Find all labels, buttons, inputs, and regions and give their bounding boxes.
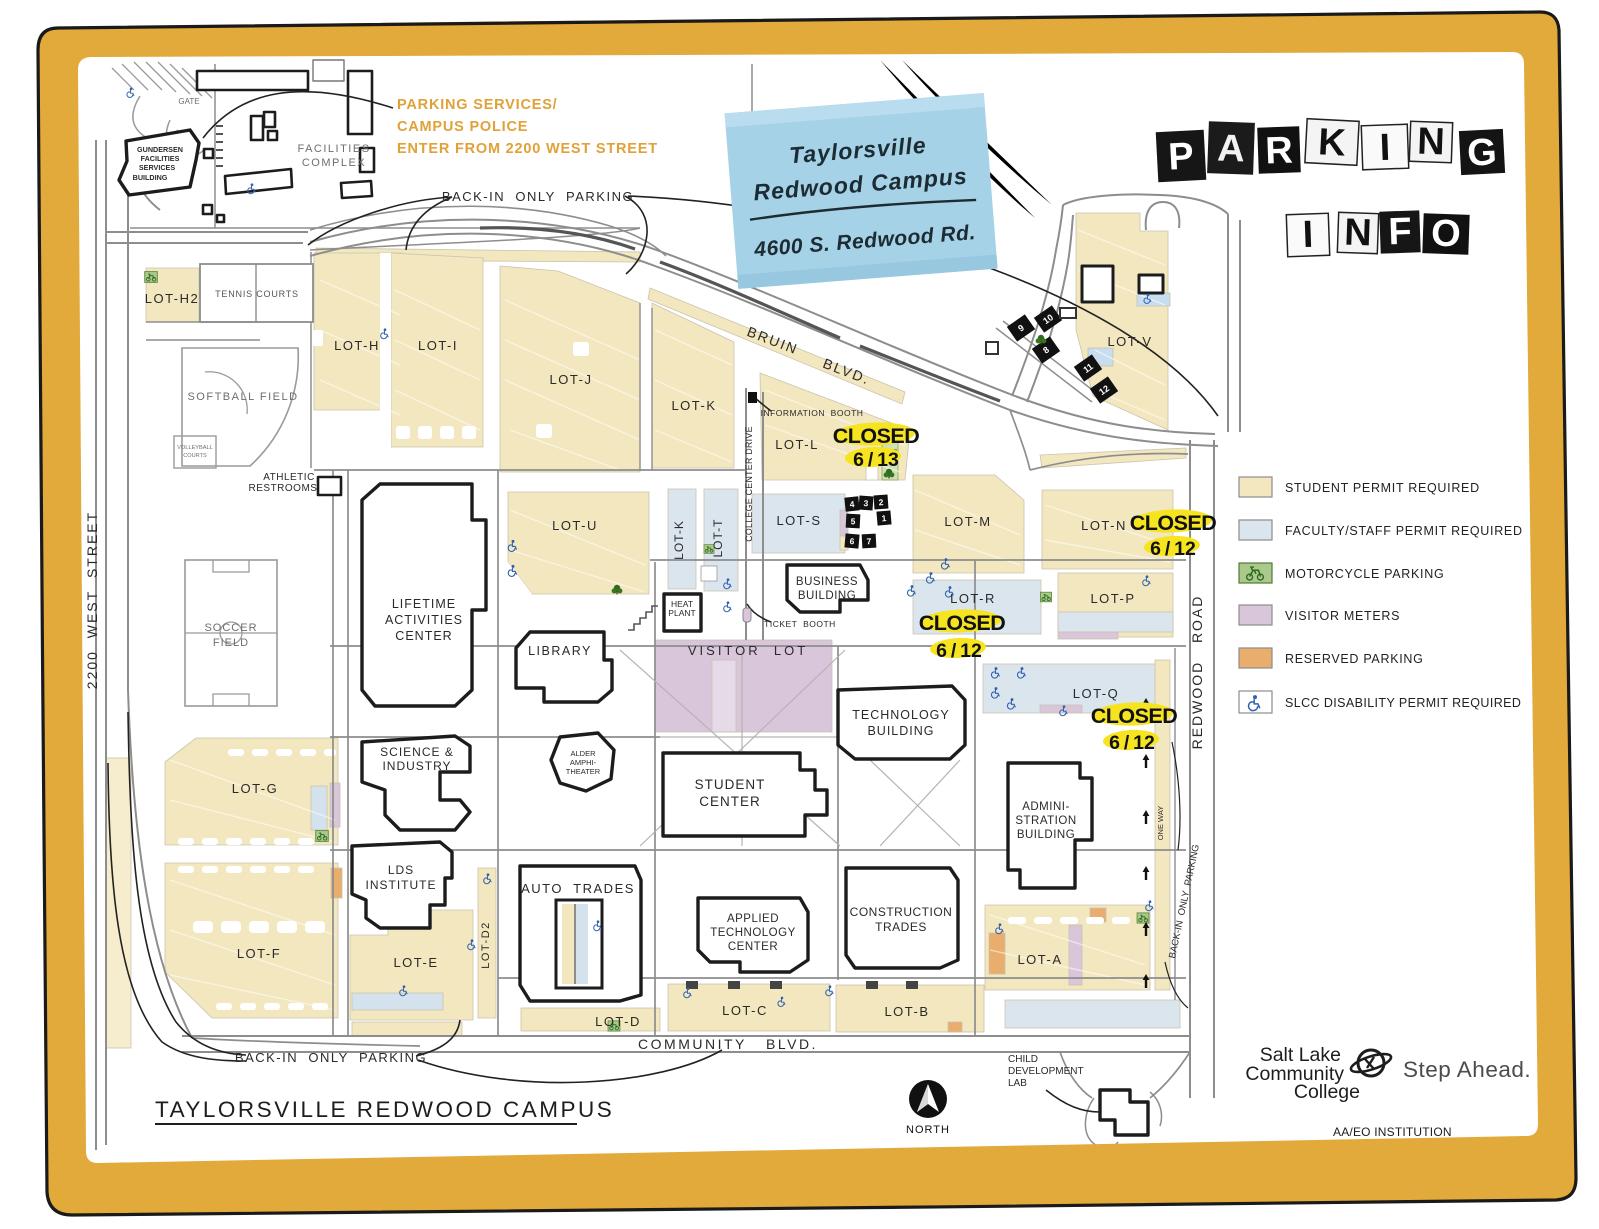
svg-text:6 / 12: 6 / 12 bbox=[1109, 732, 1155, 754]
svg-text:CONSTRUCTION: CONSTRUCTION bbox=[850, 905, 953, 919]
svg-text:BUSINESS: BUSINESS bbox=[796, 576, 858, 588]
svg-text:College: College bbox=[1294, 1081, 1360, 1103]
svg-text:VISITOR METERS: VISITOR METERS bbox=[1285, 609, 1400, 623]
svg-text:CENTER: CENTER bbox=[728, 941, 778, 953]
svg-text:INSTITUTE: INSTITUTE bbox=[366, 878, 437, 892]
svg-text:COLLEGE CENTER DRIVE: COLLEGE CENTER DRIVE bbox=[744, 426, 754, 542]
svg-text:F: F bbox=[1388, 211, 1413, 254]
svg-text:SOFTBALL FIELD: SOFTBALL FIELD bbox=[187, 391, 298, 403]
svg-text:TAYLORSVILLE REDWOOD CAMPUS: TAYLORSVILLE REDWOOD CAMPUS bbox=[155, 1097, 614, 1122]
svg-text:PLANT: PLANT bbox=[668, 608, 695, 618]
svg-text:6 / 12: 6 / 12 bbox=[936, 640, 982, 662]
svg-text:REDWOOD ROAD: REDWOOD ROAD bbox=[1189, 595, 1205, 750]
svg-text:LOT-R: LOT-R bbox=[950, 591, 996, 606]
svg-text:ONE WAY: ONE WAY bbox=[1156, 806, 1165, 841]
svg-text:COMMUNITY BLVD.: COMMUNITY BLVD. bbox=[638, 1036, 818, 1052]
svg-text:TECHNOLOGY: TECHNOLOGY bbox=[852, 708, 950, 722]
svg-text:6 / 13: 6 / 13 bbox=[853, 449, 899, 471]
svg-text:LOT-Q: LOT-Q bbox=[1073, 686, 1120, 701]
svg-text:2: 2 bbox=[878, 497, 884, 507]
svg-text:ADMINI-: ADMINI- bbox=[1022, 801, 1070, 813]
svg-text:CENTER: CENTER bbox=[395, 629, 452, 643]
svg-text:VOLLEYBALL: VOLLEYBALL bbox=[177, 445, 212, 451]
svg-text:AUTO TRADES: AUTO TRADES bbox=[521, 881, 635, 896]
svg-text:SCIENCE &: SCIENCE & bbox=[380, 745, 454, 759]
svg-text:TRADES: TRADES bbox=[875, 920, 927, 934]
svg-text:ENTER FROM 2200 WEST STREET: ENTER FROM 2200 WEST STREET bbox=[397, 141, 658, 157]
svg-text:RESTROOMS: RESTROOMS bbox=[249, 483, 318, 494]
svg-text:ATHLETIC: ATHLETIC bbox=[263, 472, 315, 483]
svg-text:CENTER: CENTER bbox=[699, 794, 761, 809]
svg-text:COURTS: COURTS bbox=[183, 453, 207, 459]
svg-text:7: 7 bbox=[866, 536, 872, 546]
svg-text:BUILDING: BUILDING bbox=[798, 590, 856, 602]
svg-text:FACULTY/STAFF PERMIT REQUIRED: FACULTY/STAFF PERMIT REQUIRED bbox=[1285, 524, 1523, 538]
svg-text:LIFETIME: LIFETIME bbox=[392, 597, 456, 611]
svg-text:LOT-N: LOT-N bbox=[1081, 518, 1127, 533]
svg-text:AA/EO INSTITUTION: AA/EO INSTITUTION bbox=[1333, 1125, 1452, 1139]
svg-text:LOT-D2: LOT-D2 bbox=[480, 921, 492, 969]
svg-text:NORTH: NORTH bbox=[906, 1124, 950, 1136]
svg-text:2200 WEST STREET: 2200 WEST STREET bbox=[84, 511, 100, 689]
svg-text:TECHNOLOGY: TECHNOLOGY bbox=[710, 927, 796, 939]
svg-text:N: N bbox=[1417, 121, 1446, 164]
svg-text:VISITOR LOT: VISITOR LOT bbox=[688, 643, 808, 658]
svg-text:DEVELOPMENT: DEVELOPMENT bbox=[1008, 1066, 1084, 1077]
svg-text:R: R bbox=[1265, 130, 1294, 173]
svg-text:LOT-B: LOT-B bbox=[884, 1004, 929, 1019]
svg-text:INDUSTRY: INDUSTRY bbox=[382, 759, 451, 773]
svg-text:LOT-G: LOT-G bbox=[232, 781, 279, 796]
svg-text:LOT-H: LOT-H bbox=[334, 338, 380, 353]
svg-text:CLOSED: CLOSED bbox=[919, 611, 1006, 635]
svg-text:FACILITIES: FACILITIES bbox=[141, 154, 180, 163]
svg-text:LOT-K: LOT-K bbox=[671, 398, 716, 413]
svg-text:LOT-A: LOT-A bbox=[1017, 952, 1062, 967]
svg-text:LOT-D: LOT-D bbox=[595, 1014, 641, 1029]
svg-text:CAMPUS POLICE: CAMPUS POLICE bbox=[397, 119, 528, 135]
svg-text:SLCC DISABILITY PERMIT REQUIRE: SLCC DISABILITY PERMIT REQUIRED bbox=[1285, 696, 1521, 710]
svg-text:I: I bbox=[1379, 127, 1391, 169]
svg-text:BACK-IN ONLY PARKING: BACK-IN ONLY PARKING bbox=[235, 1050, 427, 1065]
svg-text:TENNIS COURTS: TENNIS COURTS bbox=[215, 289, 299, 299]
svg-text:LOT-F: LOT-F bbox=[237, 946, 281, 961]
svg-text:I: I bbox=[1302, 214, 1314, 256]
svg-text:GUNDERSEN: GUNDERSEN bbox=[137, 145, 183, 154]
svg-text:CLOSED: CLOSED bbox=[1091, 704, 1178, 728]
svg-text:LAB: LAB bbox=[1008, 1078, 1027, 1089]
svg-text:ALDER: ALDER bbox=[570, 749, 596, 758]
svg-text:SOCCER: SOCCER bbox=[204, 622, 257, 634]
svg-text:LOT-P: LOT-P bbox=[1090, 591, 1135, 606]
svg-text:CLOSED: CLOSED bbox=[833, 424, 920, 448]
svg-text:STUDENT: STUDENT bbox=[695, 777, 766, 792]
svg-text:THEATER: THEATER bbox=[566, 767, 601, 776]
svg-text:LDS: LDS bbox=[388, 863, 414, 877]
svg-text:LOT-I: LOT-I bbox=[418, 338, 458, 353]
svg-text:A: A bbox=[1217, 128, 1246, 171]
svg-text:BUILDING: BUILDING bbox=[1017, 829, 1075, 841]
svg-text:Step Ahead.: Step Ahead. bbox=[1403, 1057, 1531, 1082]
svg-text:3: 3 bbox=[863, 498, 869, 508]
svg-text:LIBRARY: LIBRARY bbox=[528, 644, 592, 658]
svg-text:GATE: GATE bbox=[178, 97, 199, 106]
svg-text:STRATION: STRATION bbox=[1015, 815, 1076, 827]
svg-text:STUDENT PERMIT REQUIRED: STUDENT PERMIT REQUIRED bbox=[1285, 481, 1480, 495]
svg-text:LOT-J: LOT-J bbox=[550, 372, 593, 387]
svg-text:BUILDING: BUILDING bbox=[133, 173, 168, 182]
svg-text:LOT-E: LOT-E bbox=[393, 955, 438, 970]
svg-text:LOT-V: LOT-V bbox=[1107, 334, 1152, 349]
svg-text:RESERVED PARKING: RESERVED PARKING bbox=[1285, 652, 1424, 666]
svg-text:AMPHI-: AMPHI- bbox=[570, 758, 597, 767]
svg-text:G: G bbox=[1466, 131, 1498, 174]
svg-text:LOT-U: LOT-U bbox=[552, 518, 598, 533]
svg-text:COMPLEX: COMPLEX bbox=[302, 157, 366, 169]
svg-text:BUILDING: BUILDING bbox=[867, 724, 934, 738]
svg-text:LOT-K: LOT-K bbox=[672, 520, 686, 560]
svg-text:MOTORCYCLE PARKING: MOTORCYCLE PARKING bbox=[1285, 567, 1444, 581]
svg-text:6 / 12: 6 / 12 bbox=[1150, 538, 1196, 560]
svg-text:CHILD: CHILD bbox=[1008, 1054, 1038, 1065]
svg-text:INFORMATION BOOTH: INFORMATION BOOTH bbox=[761, 408, 864, 418]
svg-text:K: K bbox=[1317, 121, 1347, 164]
svg-text:FACILITIES: FACILITIES bbox=[297, 143, 370, 155]
svg-text:LOT-T: LOT-T bbox=[711, 518, 725, 557]
svg-text:LOT-H2: LOT-H2 bbox=[145, 291, 200, 306]
svg-text:TICKET BOOTH: TICKET BOOTH bbox=[764, 619, 836, 629]
svg-text:N: N bbox=[1344, 212, 1373, 255]
svg-text:5: 5 bbox=[850, 516, 856, 526]
svg-text:LOT-C: LOT-C bbox=[722, 1003, 768, 1018]
svg-text:SERVICES: SERVICES bbox=[139, 163, 175, 172]
svg-text:PARKING SERVICES/: PARKING SERVICES/ bbox=[397, 97, 558, 113]
svg-text:ACTIVITIES: ACTIVITIES bbox=[385, 613, 463, 627]
svg-text:FIELD: FIELD bbox=[213, 637, 249, 649]
svg-text:LOT-S: LOT-S bbox=[776, 513, 821, 528]
svg-text:CLOSED: CLOSED bbox=[1130, 511, 1217, 535]
svg-text:LOT-L: LOT-L bbox=[775, 437, 819, 452]
svg-text:LOT-M: LOT-M bbox=[944, 514, 991, 529]
svg-text:P: P bbox=[1167, 135, 1195, 178]
svg-text:O: O bbox=[1430, 212, 1461, 255]
svg-text:APPLIED: APPLIED bbox=[727, 913, 779, 925]
svg-text:BACK-IN ONLY PARKING: BACK-IN ONLY PARKING bbox=[442, 189, 634, 204]
